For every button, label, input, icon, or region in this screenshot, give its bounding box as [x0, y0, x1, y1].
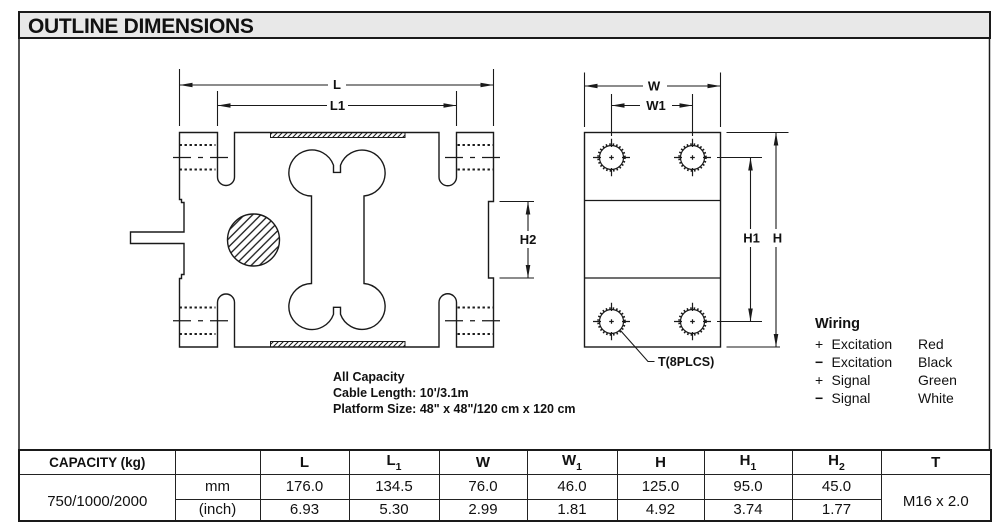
svg-text:W: W: [648, 79, 661, 94]
svg-text:H2: H2: [520, 232, 537, 247]
svg-text:H1: H1: [743, 231, 760, 246]
svg-text:L: L: [333, 77, 341, 92]
svg-text:H: H: [773, 231, 782, 246]
svg-text:L1: L1: [330, 98, 345, 113]
svg-text:W1: W1: [646, 98, 666, 113]
svg-text:T(8PLCS): T(8PLCS): [658, 355, 714, 369]
